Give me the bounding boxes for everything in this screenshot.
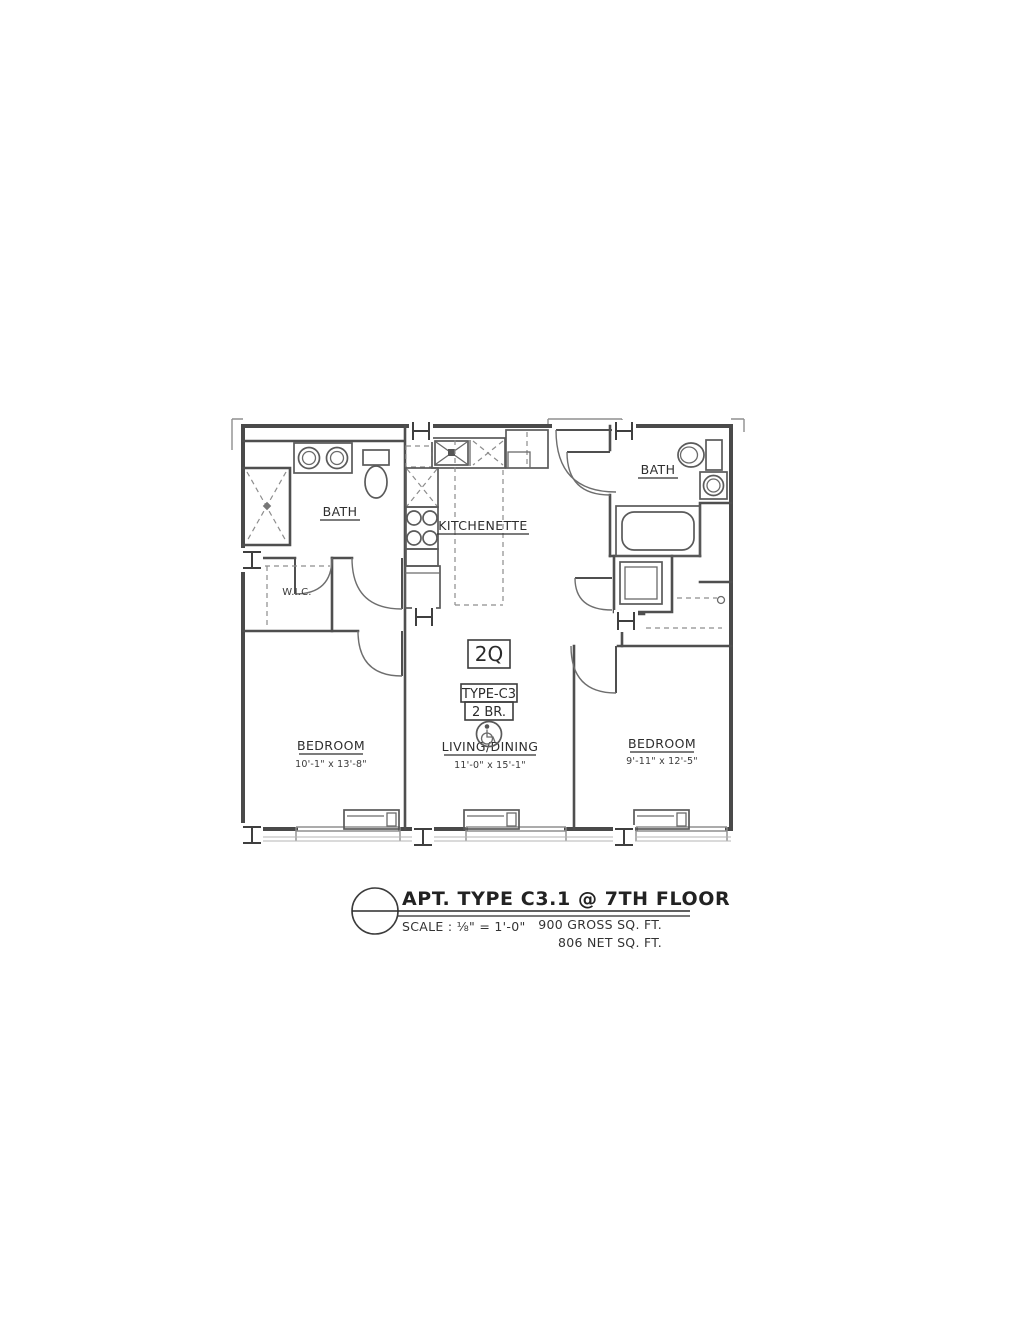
door-tag-icon [412, 606, 436, 628]
heater-units [344, 810, 689, 829]
kitchenette-label: KITCHENETTE [438, 518, 527, 533]
refrigerator-icon [405, 566, 440, 608]
bath-left-label: BATH [323, 504, 358, 519]
unit-markers: 2Q TYPE-C3 2 BR. [461, 640, 517, 747]
room-label-bath-right: BATH [638, 462, 678, 478]
room-label-bath-left: BATH [320, 504, 360, 520]
washer-dryer-icon [620, 562, 662, 604]
toilet-icon [363, 450, 389, 498]
gross-area-note: 900 GROSS SQ. FT. [538, 917, 662, 932]
room-label-wic: W.I.C. [282, 587, 311, 598]
kitchen-sink-icon [435, 441, 468, 465]
floor-plan-drawing: BATH KITCHENETTE BATH W.I.C. BEDROOM 10'… [0, 0, 1024, 1325]
room-label-kitchenette: KITCHENETTE [437, 518, 529, 534]
bed-config-text: 2Q [475, 642, 503, 666]
bath-right-fixtures [616, 440, 727, 556]
bedroom-left-dimensions: 10'-1" x 13'-8" [295, 759, 367, 770]
bedroom-left-label: BEDROOM [297, 738, 365, 753]
sheet-title: APT. TYPE C3.1 @ 7TH FLOOR [402, 888, 730, 910]
bathtub-icon [616, 506, 700, 556]
unit-type-text: TYPE-C3 [461, 687, 516, 702]
bath-right-door-swing [567, 452, 610, 495]
window-tag-icon [613, 825, 635, 849]
bedroom-left-door-swing [358, 631, 402, 676]
sink-icon [700, 472, 727, 499]
window-tag-icon [241, 823, 263, 847]
bath-left-door-swing [352, 558, 402, 609]
bedroom-right-door-swing [571, 646, 616, 693]
window-tag-icon [412, 825, 434, 849]
bath-left-fixtures [243, 443, 389, 545]
title-block: APT. TYPE C3.1 @ 7TH FLOOR SCALE : ⅛" = … [352, 888, 730, 950]
bedroom-right-dimensions: 9'-11" x 12'-5" [626, 756, 698, 767]
entry-door-swing [556, 430, 616, 492]
door-tag-icon [409, 420, 433, 442]
bedroom-right-label: BEDROOM [628, 736, 696, 751]
heater-unit [344, 810, 399, 829]
unit-type-marker: TYPE-C3 2 BR. [461, 684, 517, 720]
heater-unit [634, 810, 689, 829]
shower [243, 468, 290, 545]
drawing-sheet: BATH KITCHENETTE BATH W.I.C. BEDROOM 10'… [0, 0, 1024, 1325]
bedroom-count-text: 2 BR. [472, 705, 506, 720]
room-label-bedroom-right: BEDROOM 9'-11" x 12'-5" [626, 736, 698, 767]
entry-closet [506, 430, 548, 468]
bath-right-label: BATH [641, 462, 676, 477]
hall-closet-door-swing [575, 578, 612, 610]
vanity-double-sink [294, 443, 352, 473]
wic-label: W.I.C. [282, 587, 311, 598]
net-area-note: 806 NET SQ. FT. [558, 935, 662, 950]
bed-config-marker: 2Q [468, 640, 510, 668]
upper-cabinet [406, 468, 438, 507]
heater-unit [464, 810, 519, 829]
stove-icon [406, 507, 438, 549]
room-label-bedroom-left: BEDROOM 10'-1" x 13'-8" [295, 738, 367, 770]
living-dining-dimensions: 11'-0" x 15'-1" [454, 760, 526, 771]
scale-note: SCALE : ⅛" = 1'-0" [402, 919, 526, 934]
door-tag-icon [614, 610, 638, 632]
window-tag-icon [241, 548, 263, 572]
door-tag-icon [612, 420, 636, 442]
toilet-icon [678, 440, 722, 470]
